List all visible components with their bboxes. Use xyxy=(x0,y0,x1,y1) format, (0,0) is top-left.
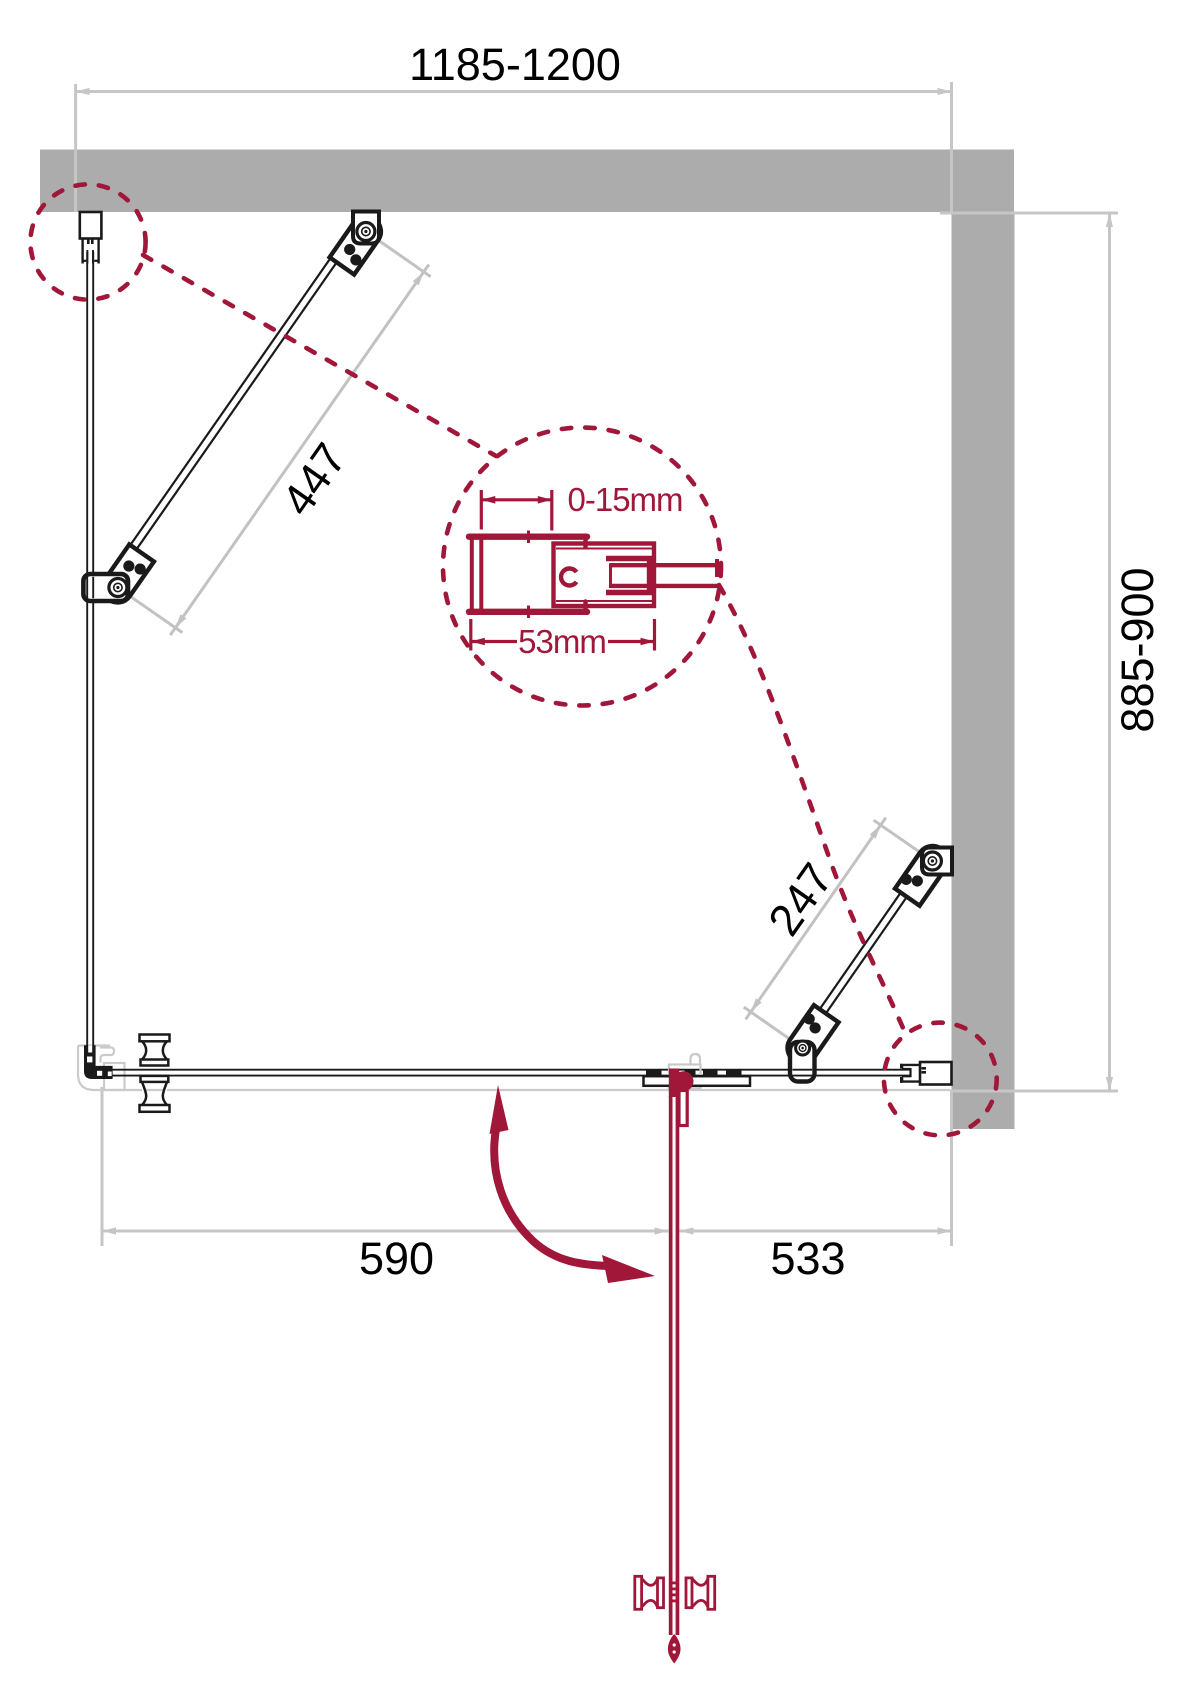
svg-text:1185-1200: 1185-1200 xyxy=(409,39,621,90)
svg-text:590: 590 xyxy=(359,1233,434,1284)
svg-text:533: 533 xyxy=(770,1233,845,1284)
svg-text:247: 247 xyxy=(758,854,843,945)
svg-text:0-15mm: 0-15mm xyxy=(568,481,683,518)
svg-text:53mm: 53mm xyxy=(518,623,606,660)
svg-text:885-900: 885-900 xyxy=(1112,567,1163,732)
svg-text:447: 447 xyxy=(271,434,356,525)
